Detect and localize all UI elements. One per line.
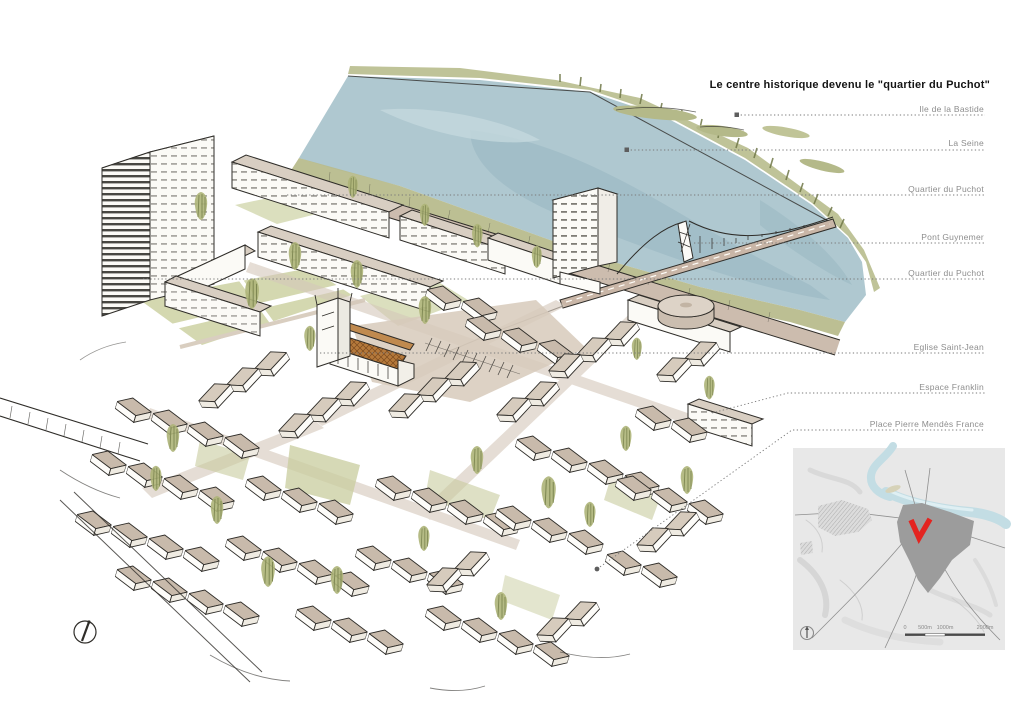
poster: Le centre historique devenu le "quartier… <box>0 0 1024 724</box>
callout-pont-guynemer: Pont Guynemer <box>921 232 984 242</box>
scalebar-label-1000m: 1000m <box>937 625 954 631</box>
callout-espace-franklin: Espace Franklin <box>919 382 984 392</box>
scalebar-label-2000m: 2000m <box>977 625 994 631</box>
callout-quartier-du-puchot-1: Quartier du Puchot <box>908 184 984 194</box>
callout-ile-de-la-bastide: Ile de la Bastide <box>919 104 984 114</box>
scalebar-label-0: 0 <box>903 625 906 631</box>
page-title: Le centre historique devenu le "quartier… <box>710 79 990 91</box>
axonometric-illustration <box>0 0 1024 724</box>
north-arrow-icon <box>74 620 96 643</box>
callout-place-pierre-mendes-france: Place Pierre Mendès France <box>870 419 984 429</box>
locator-scalebar <box>905 634 985 636</box>
callout-eglise-saint-jean: Eglise Saint-Jean <box>914 342 984 352</box>
scalebar-label-500m: 500m <box>918 625 932 631</box>
locator-map <box>793 446 1006 650</box>
callout-quartier-du-puchot-2: Quartier du Puchot <box>908 268 984 278</box>
callout-la-seine: La Seine <box>948 138 984 148</box>
